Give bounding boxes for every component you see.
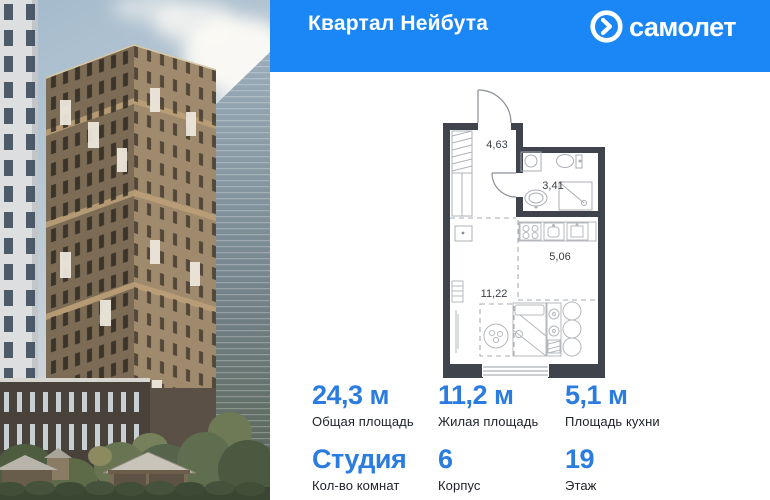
stats-section: 24,3 м Общая площадь 11,2 м Жилая площад… [270, 0, 770, 500]
stat-building-label: Корпус [438, 478, 481, 493]
stat-floor-value: 19 [565, 445, 596, 473]
listing-card[interactable]: Квартал Нейбута самолет [0, 0, 770, 500]
stat-building-value: 6 [438, 445, 481, 473]
stat-total-area-value: 24,3 м [312, 381, 414, 409]
hedge [0, 481, 270, 500]
stat-rooms-value: Студия [312, 445, 406, 473]
building-photo [0, 0, 270, 500]
stat-kitchen-area: 5,1 м Площадь кухни [565, 381, 660, 429]
stat-kitchen-area-label: Площадь кухни [565, 414, 660, 429]
info-panel: Квартал Нейбута самолет [270, 0, 770, 500]
stat-rooms-label: Кол-во комнат [312, 478, 406, 493]
stat-floor: 19 Этаж [565, 445, 596, 493]
building-photo-render [0, 0, 270, 500]
stat-living-area: 11,2 м Жилая площадь [438, 381, 538, 429]
stat-floor-label: Этаж [565, 478, 596, 493]
stat-total-area: 24,3 м Общая площадь [312, 381, 414, 429]
stat-building: 6 Корпус [438, 445, 481, 493]
stat-living-area-value: 11,2 м [438, 381, 538, 409]
stat-living-area-label: Жилая площадь [438, 414, 538, 429]
stat-rooms: Студия Кол-во комнат [312, 445, 406, 493]
stat-kitchen-area-value: 5,1 м [565, 381, 660, 409]
stat-total-area-label: Общая площадь [312, 414, 414, 429]
